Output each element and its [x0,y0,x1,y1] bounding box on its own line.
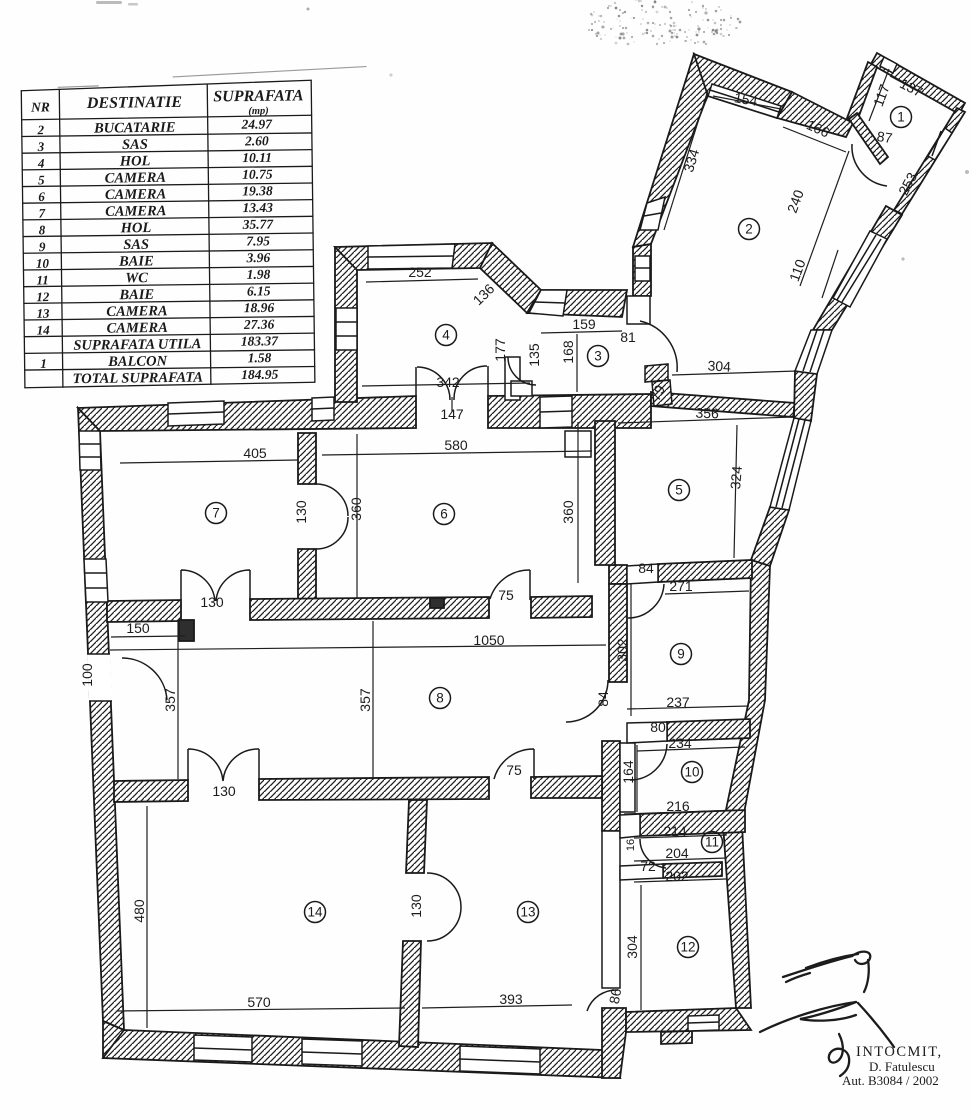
svg-text:BALCON: BALCON [107,353,168,370]
svg-text:12: 12 [36,289,50,304]
svg-text:1: 1 [897,110,905,125]
svg-text:130: 130 [408,894,424,918]
svg-text:130: 130 [200,594,224,610]
svg-text:19.38: 19.38 [242,183,273,198]
svg-text:580: 580 [444,437,468,453]
svg-text:BAIE: BAIE [118,253,154,269]
svg-text:5: 5 [675,483,683,498]
svg-text:147: 147 [440,406,464,422]
svg-text:135: 135 [526,343,542,367]
svg-text:10.11: 10.11 [242,150,272,165]
svg-text:204: 204 [665,845,689,861]
svg-text:14: 14 [37,322,51,337]
svg-text:CAMERA: CAMERA [106,320,168,337]
svg-text:13.43: 13.43 [242,200,273,215]
svg-text:304: 304 [624,935,640,959]
svg-text:234: 234 [668,735,692,751]
svg-text:130: 130 [293,500,309,524]
svg-text:CAMERA: CAMERA [106,303,168,320]
svg-text:3: 3 [594,349,602,364]
svg-text:BAIE: BAIE [118,287,154,303]
svg-text:(mp): (mp) [248,106,269,117]
svg-text:CAMERA: CAMERA [105,170,167,187]
svg-text:84: 84 [595,691,611,707]
svg-text:4: 4 [37,156,45,171]
svg-text:12: 12 [680,940,695,955]
svg-text:75: 75 [498,587,514,603]
svg-text:16: 16 [625,839,637,851]
svg-text:9: 9 [677,647,685,662]
svg-text:271: 271 [669,578,693,594]
svg-text:1.98: 1.98 [247,267,271,282]
svg-text:INTOCMIT,: INTOCMIT, [856,1044,943,1060]
svg-text:360: 360 [560,500,576,524]
svg-text:WC: WC [125,270,148,286]
svg-text:168: 168 [560,340,576,364]
svg-text:183.37: 183.37 [241,333,280,348]
svg-text:1: 1 [40,356,47,371]
svg-text:1.58: 1.58 [248,350,272,365]
svg-text:3.96: 3.96 [245,250,270,265]
svg-text:480: 480 [131,899,147,923]
svg-text:1050: 1050 [473,632,504,648]
svg-text:159: 159 [572,316,596,332]
svg-text:11: 11 [36,272,48,287]
svg-text:10.75: 10.75 [242,167,273,182]
svg-text:NR: NR [30,99,50,114]
svg-text:TOTAL SUPRAFATA: TOTAL SUPRAFATA [73,370,204,388]
svg-text:D. Fatulescu: D. Fatulescu [869,1059,935,1074]
svg-text:302: 302 [614,638,630,662]
svg-text:Aut. B3084 / 2002: Aut. B3084 / 2002 [842,1073,939,1088]
svg-text:13: 13 [36,306,50,321]
svg-text:2: 2 [745,222,753,237]
svg-text:393: 393 [499,991,523,1007]
svg-text:304: 304 [707,357,731,374]
svg-text:6: 6 [440,507,448,522]
svg-text:HOL: HOL [120,220,152,236]
svg-text:CAMERA: CAMERA [105,186,167,203]
svg-text:8: 8 [436,691,444,706]
svg-text:252: 252 [408,264,432,280]
svg-text:27.36: 27.36 [243,317,275,332]
svg-text:10: 10 [684,765,699,780]
svg-text:11: 11 [705,835,719,850]
svg-text:84: 84 [638,560,654,576]
svg-text:35.77: 35.77 [242,217,275,232]
svg-text:357: 357 [357,688,373,712]
svg-text:DESTINATIE: DESTINATIE [86,94,182,112]
svg-text:2: 2 [36,122,44,137]
svg-text:80: 80 [650,719,666,735]
svg-text:342: 342 [436,374,460,390]
svg-text:202: 202 [665,868,689,884]
svg-text:3: 3 [37,139,45,154]
svg-text:8: 8 [39,222,46,237]
svg-text:6.15: 6.15 [247,283,271,298]
svg-text:7: 7 [212,506,220,521]
svg-text:405: 405 [243,445,267,461]
svg-text:SAS: SAS [123,237,149,253]
svg-text:237: 237 [666,694,690,710]
svg-text:357: 357 [162,688,178,712]
svg-text:360: 360 [348,497,364,521]
svg-text:72: 72 [640,858,656,874]
svg-text:216: 216 [666,798,690,814]
svg-text:SUPRAFATA: SUPRAFATA [213,87,304,105]
svg-text:2.60: 2.60 [244,133,269,148]
svg-text:CAMERA: CAMERA [105,203,167,220]
svg-text:10: 10 [36,256,50,271]
svg-text:9: 9 [39,239,46,254]
svg-text:13: 13 [520,905,535,920]
svg-text:4: 4 [442,328,450,343]
svg-text:86: 86 [606,987,624,1005]
svg-text:100: 100 [79,663,95,687]
svg-text:150: 150 [126,620,150,636]
svg-text:184.95: 184.95 [241,367,279,382]
svg-text:164: 164 [620,760,636,784]
svg-text:87: 87 [876,128,894,146]
svg-text:7: 7 [38,206,45,221]
svg-text:HOL: HOL [119,153,151,169]
svg-text:177: 177 [492,338,508,362]
svg-text:6: 6 [38,189,45,204]
svg-text:5: 5 [38,172,45,187]
svg-text:SAS: SAS [122,137,148,153]
svg-text:75: 75 [506,762,522,778]
svg-text:7.95: 7.95 [246,233,270,248]
svg-text:24.97: 24.97 [240,116,273,131]
svg-text:18.96: 18.96 [244,300,275,315]
svg-text:570: 570 [247,994,271,1010]
svg-text:14: 14 [307,905,323,920]
svg-text:BUCATARIE: BUCATARIE [93,120,176,137]
svg-text:130: 130 [212,783,236,799]
svg-text:356: 356 [695,405,719,422]
svg-text:SUPRAFATA UTILA: SUPRAFATA UTILA [73,336,202,354]
svg-text:214: 214 [663,823,687,839]
svg-text:324: 324 [727,465,745,490]
svg-text:81: 81 [620,329,636,345]
